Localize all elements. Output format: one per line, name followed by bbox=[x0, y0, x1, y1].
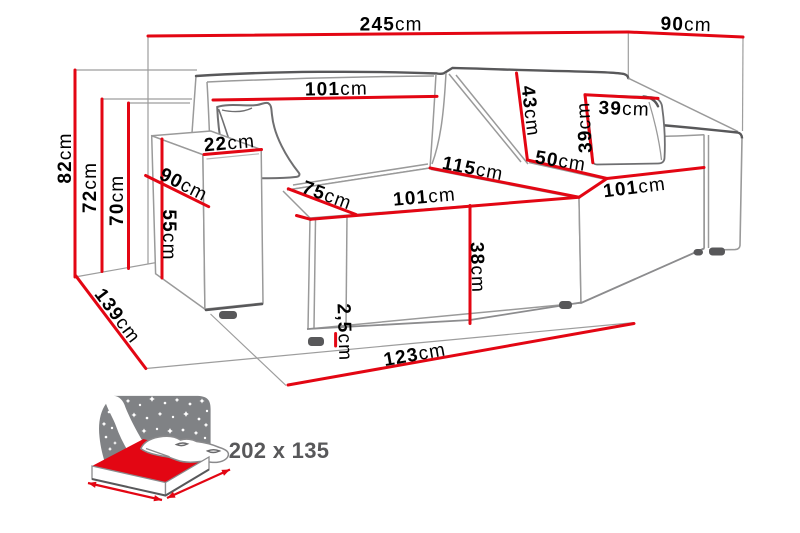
svg-text:82cm: 82cm bbox=[55, 132, 76, 183]
svg-text:101cm: 101cm bbox=[305, 78, 368, 100]
svg-text:245cm: 245cm bbox=[360, 15, 423, 36]
svg-text:22cm: 22cm bbox=[203, 131, 256, 156]
svg-text:72cm: 72cm bbox=[80, 162, 101, 213]
svg-text:39cm: 39cm bbox=[573, 101, 597, 153]
svg-text:2,5cm: 2,5cm bbox=[332, 303, 355, 361]
svg-text:55cm: 55cm bbox=[158, 209, 179, 260]
svg-text:202 x 135: 202 x 135 bbox=[229, 438, 330, 463]
svg-text:39cm: 39cm bbox=[598, 98, 650, 121]
svg-text:38cm: 38cm bbox=[466, 242, 489, 294]
svg-text:70cm: 70cm bbox=[107, 175, 128, 226]
svg-text:90cm: 90cm bbox=[660, 14, 712, 37]
